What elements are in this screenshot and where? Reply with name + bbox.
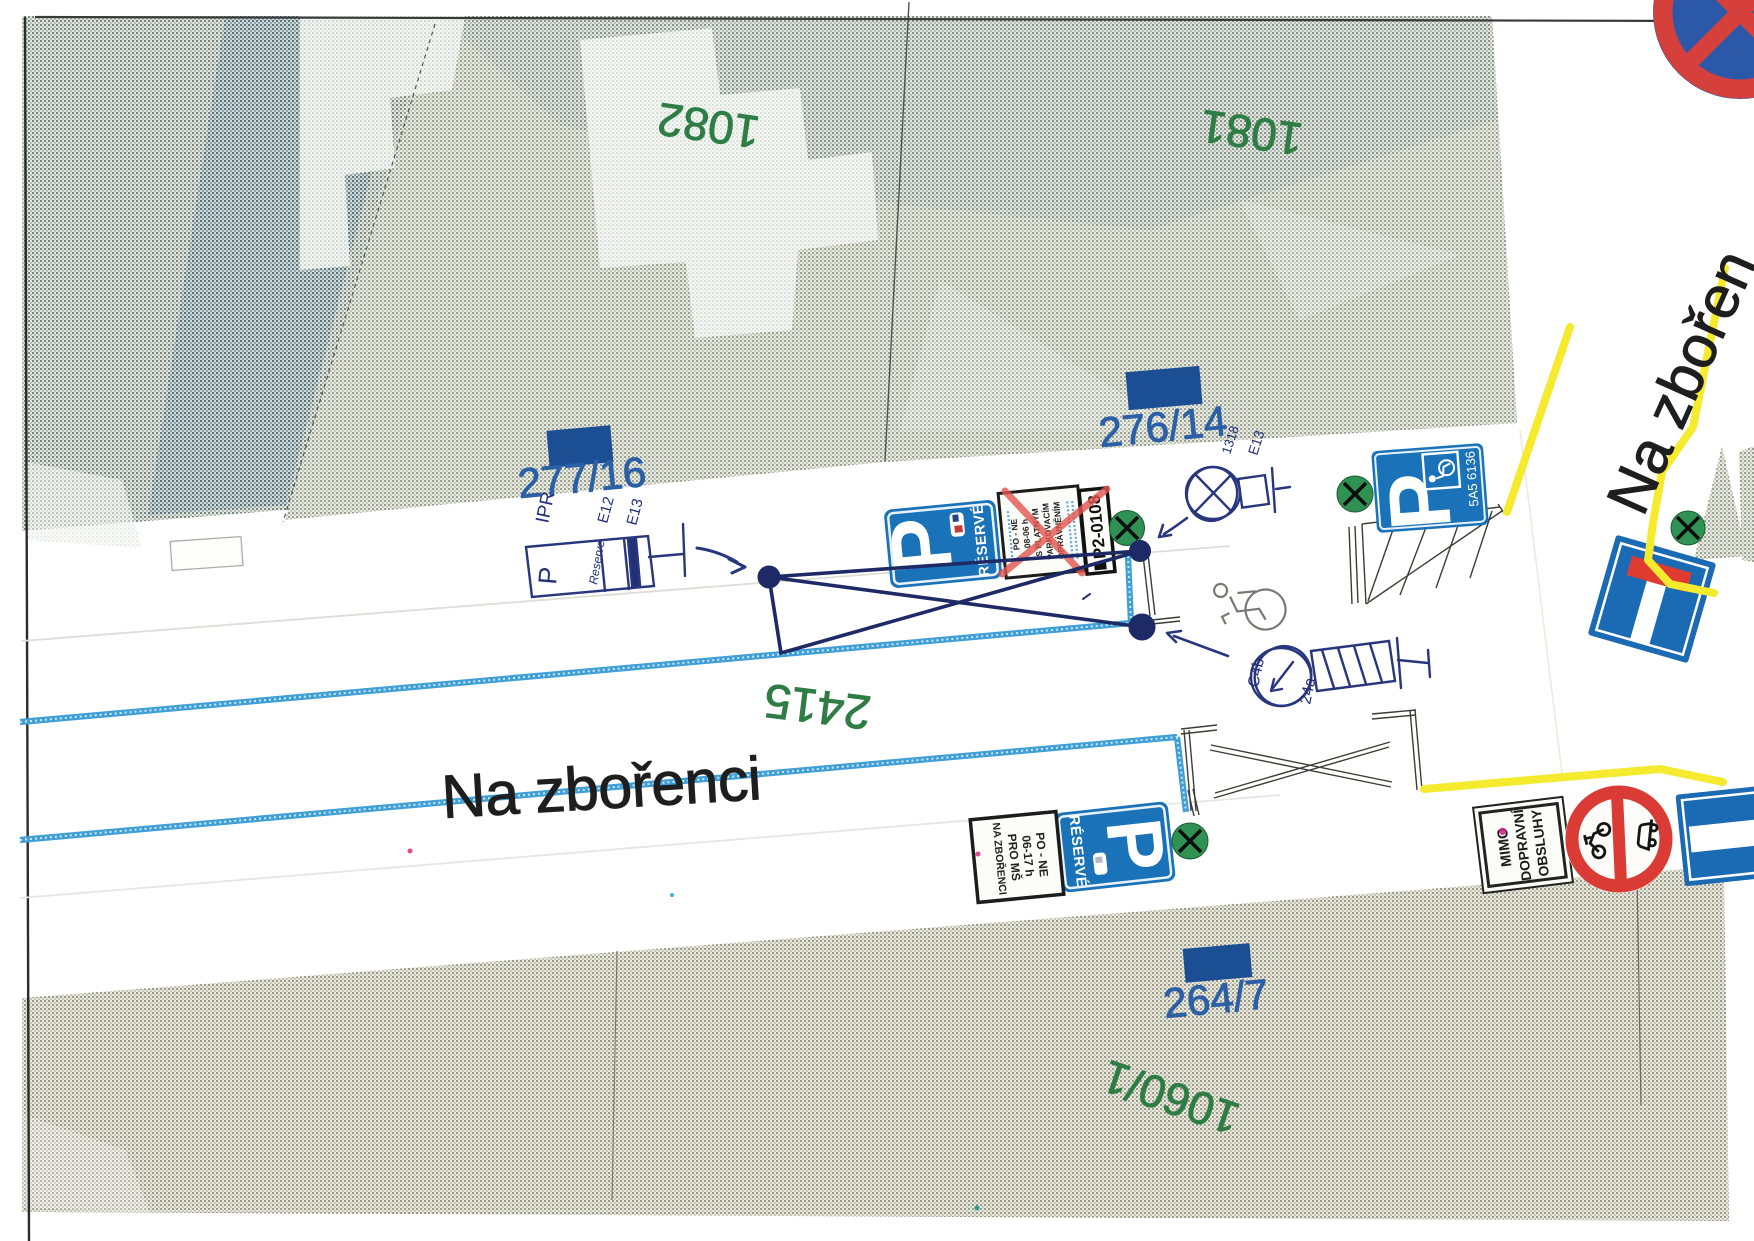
svg-text:Na zbořen: Na zbořen	[1594, 240, 1754, 523]
svg-text:C4b: C4b	[1245, 656, 1268, 688]
svg-text:264/7: 264/7	[1161, 970, 1270, 1027]
svg-text:P: P	[532, 566, 563, 586]
svg-text:E13: E13	[623, 497, 646, 527]
svg-text:Na zbořenci: Na zbořenci	[440, 744, 763, 831]
svg-text:24a: 24a	[1297, 676, 1319, 706]
svg-text:2415: 2415	[761, 673, 873, 739]
svg-text:P: P	[1370, 469, 1470, 533]
